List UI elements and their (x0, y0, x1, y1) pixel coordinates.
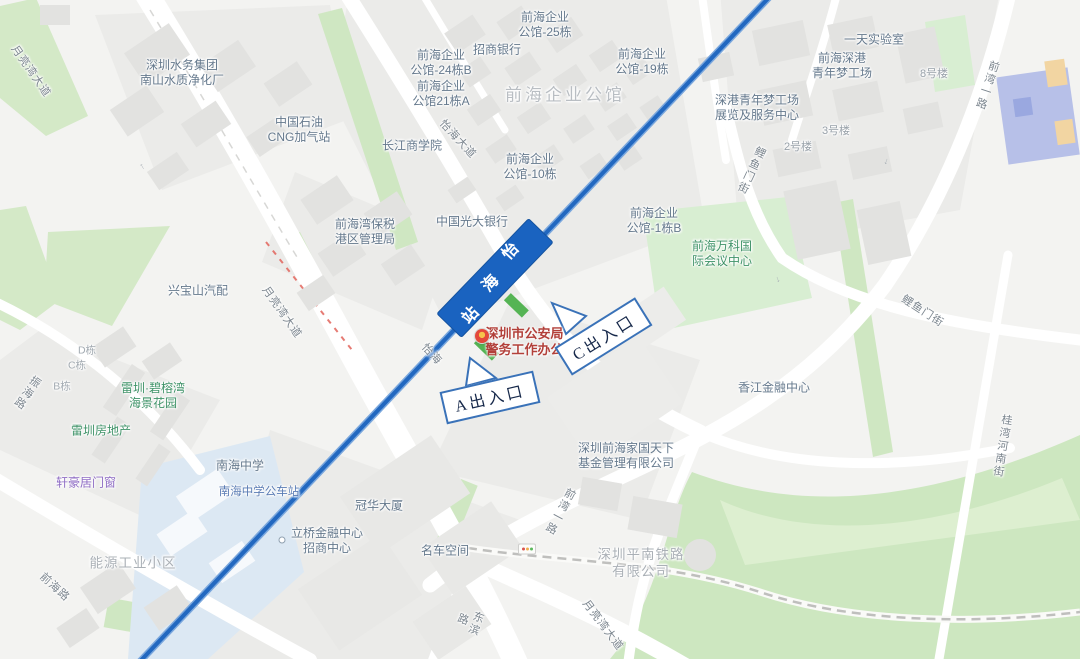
label-qianwan-1st-road-n: 前湾一路 (971, 58, 1000, 112)
label-dream-factory: 前海深港 青年梦工场 (812, 51, 872, 81)
map-canvas[interactable]: 前海企业 公馆-25栋 招商银行 前海企业 公馆-24栋B 前海企业 公馆21栋… (0, 0, 1080, 659)
label-yihai-avenue: 怡海大道 (436, 118, 479, 162)
police-badge-icon[interactable] (475, 329, 489, 343)
road-arrow-icon: ↑ (774, 275, 782, 286)
label-xingbaoshan: 兴宝山汽配 (168, 284, 228, 299)
label-block-c: C栋 (68, 359, 86, 372)
label-qianwan-1st-road-s: 前湾一路 (541, 485, 578, 537)
label-dream-factory-center: 深港青年梦工场 展览及服务中心 (715, 93, 799, 123)
label-gongguan-25: 前海企业 公馆-25栋 (518, 10, 571, 40)
label-liyumen-street-e: 鲤鱼门街 (898, 293, 946, 331)
label-yueliangwan-s: 月亮湾大道 (578, 598, 625, 654)
label-yueliangwan-nw: 月亮湾大道 (7, 43, 53, 100)
label-water-plant: 深圳水务集团 南山水质净化厂 (140, 58, 224, 88)
label-gongguan-1B: 前海企业 公馆-1栋B (627, 206, 682, 236)
label-building-3: 3号楼 (822, 125, 850, 139)
label-nanhai-school-bus-stop: 南海中学公车站 (219, 485, 300, 499)
label-liqiao-financial: 立桥金融中心 招商中心 (291, 526, 363, 556)
label-yueliangwan-w: 月亮湾大道 (258, 284, 304, 341)
label-building-8: 8号楼 (920, 68, 948, 82)
road-arrow-icon: ↑ (138, 161, 147, 172)
label-bonded-port-bureau: 前海湾保税 港区管理局 (335, 217, 395, 247)
label-building-2: 2号楼 (784, 141, 812, 155)
label-cng-station: 中国石油 CNG加气站 (268, 115, 331, 145)
poi-dot-icon (279, 537, 286, 544)
label-zhenhai-road: 振海路 (9, 372, 43, 412)
station-name-char-1[interactable]: 怡 (495, 236, 523, 264)
label-vanke-conference-center: 前海万科国 际会议中心 (692, 239, 752, 269)
label-liyumen-street-n: 鲤鱼门街 (733, 144, 767, 197)
station-name-char-3[interactable]: 站 (455, 300, 483, 328)
label-dongbin-road: 东滨路 (449, 598, 488, 643)
label-yitian-lab: 一天实验室 (844, 33, 904, 48)
station-name-char-2[interactable]: 海 (475, 268, 503, 296)
label-pingnan-railway: 深圳平南铁路 有限公司 (598, 547, 685, 581)
callout-exit-a[interactable]: A出入口 (440, 371, 541, 425)
label-gongguan-21A: 前海企业 公馆21栋A (412, 79, 469, 109)
label-leizhen-realestate: 雷圳房地产 (71, 424, 131, 439)
label-mingche-space: 名车空间 (421, 544, 469, 559)
label-gongguan-24B: 前海企业 公馆-24栋B (410, 48, 471, 78)
label-block-b: B栋 (53, 380, 71, 393)
label-xiangjiang-financial: 香江金融中心 (738, 381, 810, 396)
label-birongwan-garden: 雷圳·碧榕湾 海景花园 (121, 381, 185, 411)
label-zhaoshang-bank: 招商银行 (473, 43, 521, 58)
label-gongguan-10: 前海企业 公馆-10栋 (503, 152, 556, 182)
label-xuanhao-doors: 轩豪居门窗 (56, 476, 116, 491)
label-changjiang-school: 长江商学院 (382, 139, 442, 154)
label-block-d: D栋 (78, 344, 96, 357)
map-label-layer: 前海企业 公馆-25栋 招商银行 前海企业 公馆-24栋B 前海企业 公馆21栋… (0, 0, 1080, 659)
label-yihai-partial: 怡海 (418, 342, 444, 369)
road-arrow-icon: ↑ (882, 157, 890, 168)
label-guiwanhe-south-street: 桂湾河南街 (989, 413, 1013, 479)
label-qianhai-road: 前海路 (36, 571, 72, 605)
label-everbright-bank: 中国光大银行 (436, 215, 508, 230)
label-gongguan-19: 前海企业 公馆-19栋 (615, 47, 668, 77)
label-guanhua-building: 冠华大厦 (355, 499, 403, 514)
label-qianhai-enterprise-mansion: 前海企业公馆 (505, 84, 625, 105)
traffic-light-icon (518, 544, 536, 555)
label-nanhai-school: 南海中学 (216, 459, 264, 474)
label-energy-industrial-zone: 能源工业小区 (90, 556, 177, 573)
label-jiaguo-fund: 深圳前海家国天下 基金管理有限公司 (578, 441, 674, 471)
